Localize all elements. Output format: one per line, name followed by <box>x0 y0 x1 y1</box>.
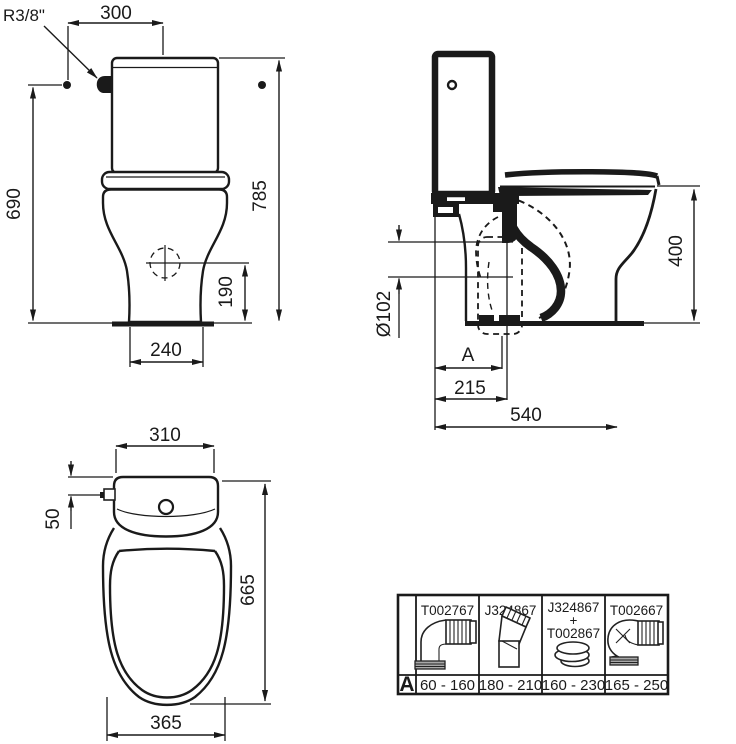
table-range-1: 60 - 160 <box>420 677 475 694</box>
side-cistern-lid-slot <box>446 59 472 64</box>
side-flush-channel-top <box>493 204 517 212</box>
side-rim <box>498 187 652 196</box>
dim-400-label: 400 <box>666 235 687 267</box>
dim-365-label: 365 <box>150 713 182 734</box>
dim-690-label: 690 <box>4 188 25 220</box>
pan-connector-elbow-icon <box>415 620 476 669</box>
side-view: Ø102 A 215 540 400 <box>374 54 700 430</box>
side-foot-clip <box>499 315 520 322</box>
dim-190-label: 190 <box>216 276 237 308</box>
side-cistern-button <box>448 81 456 89</box>
front-supply-valve <box>97 76 112 93</box>
table-range-2: 180 - 210 <box>479 677 542 694</box>
table-code-1: T002767 <box>421 603 474 618</box>
side-bowl-profile <box>616 189 656 321</box>
supply-point-dot-right <box>258 81 266 89</box>
dim-50-label: 50 <box>43 508 64 529</box>
table-range-4: 165 - 250 <box>605 677 668 694</box>
top-view: 310 50 665 365 <box>43 425 271 741</box>
pan-connector-offset-icon <box>499 607 530 667</box>
top-seat-outer <box>103 528 231 705</box>
table-code-3c: T002867 <box>547 626 600 641</box>
side-lid-front-edge <box>657 176 659 185</box>
dim-300-label: 300 <box>100 3 132 24</box>
side-cistern <box>435 54 492 194</box>
side-foot-clip <box>479 315 494 322</box>
side-seat-lid <box>505 172 657 176</box>
front-cistern <box>112 58 218 173</box>
side-outlet-inner-dashed <box>488 262 493 313</box>
supply-point-dot-left <box>63 81 71 89</box>
dim-102-label: Ø102 <box>374 291 395 337</box>
side-cistern-bottom-slot <box>447 181 471 186</box>
supply-connection-label: R3/8" <box>3 6 45 25</box>
dim-A-label: A <box>462 345 475 366</box>
dim-785-label: 785 <box>250 180 271 212</box>
top-flush-button <box>159 500 173 514</box>
dim-310-label: 310 <box>149 425 181 446</box>
table-code-4: T002667 <box>610 603 663 618</box>
dim-540-label: 540 <box>510 405 542 426</box>
technical-drawing: 300 R3/8" 690 785 190 240 <box>0 0 736 744</box>
supply-leader-line <box>44 26 97 78</box>
table-row-label: A <box>399 673 414 696</box>
dim-665-label: 665 <box>238 574 259 606</box>
dim-215-label: 215 <box>454 378 486 399</box>
side-trap-inlet-dashed <box>476 217 498 279</box>
side-pedestal-back <box>459 214 466 321</box>
front-view: 300 R3/8" 690 785 190 240 <box>3 3 285 367</box>
front-seat-platform <box>102 172 229 189</box>
pan-connector-seal-icon <box>555 642 589 667</box>
connector-table: A T002767 J324867 J324867 + T002867 T002… <box>398 595 668 696</box>
dim-240-label: 240 <box>150 340 182 361</box>
table-range-3: 160 - 230 <box>542 677 605 694</box>
side-flush-slot <box>438 207 453 213</box>
pan-connector-long-elbow-icon <box>608 620 663 665</box>
top-supply-connector <box>104 489 115 500</box>
